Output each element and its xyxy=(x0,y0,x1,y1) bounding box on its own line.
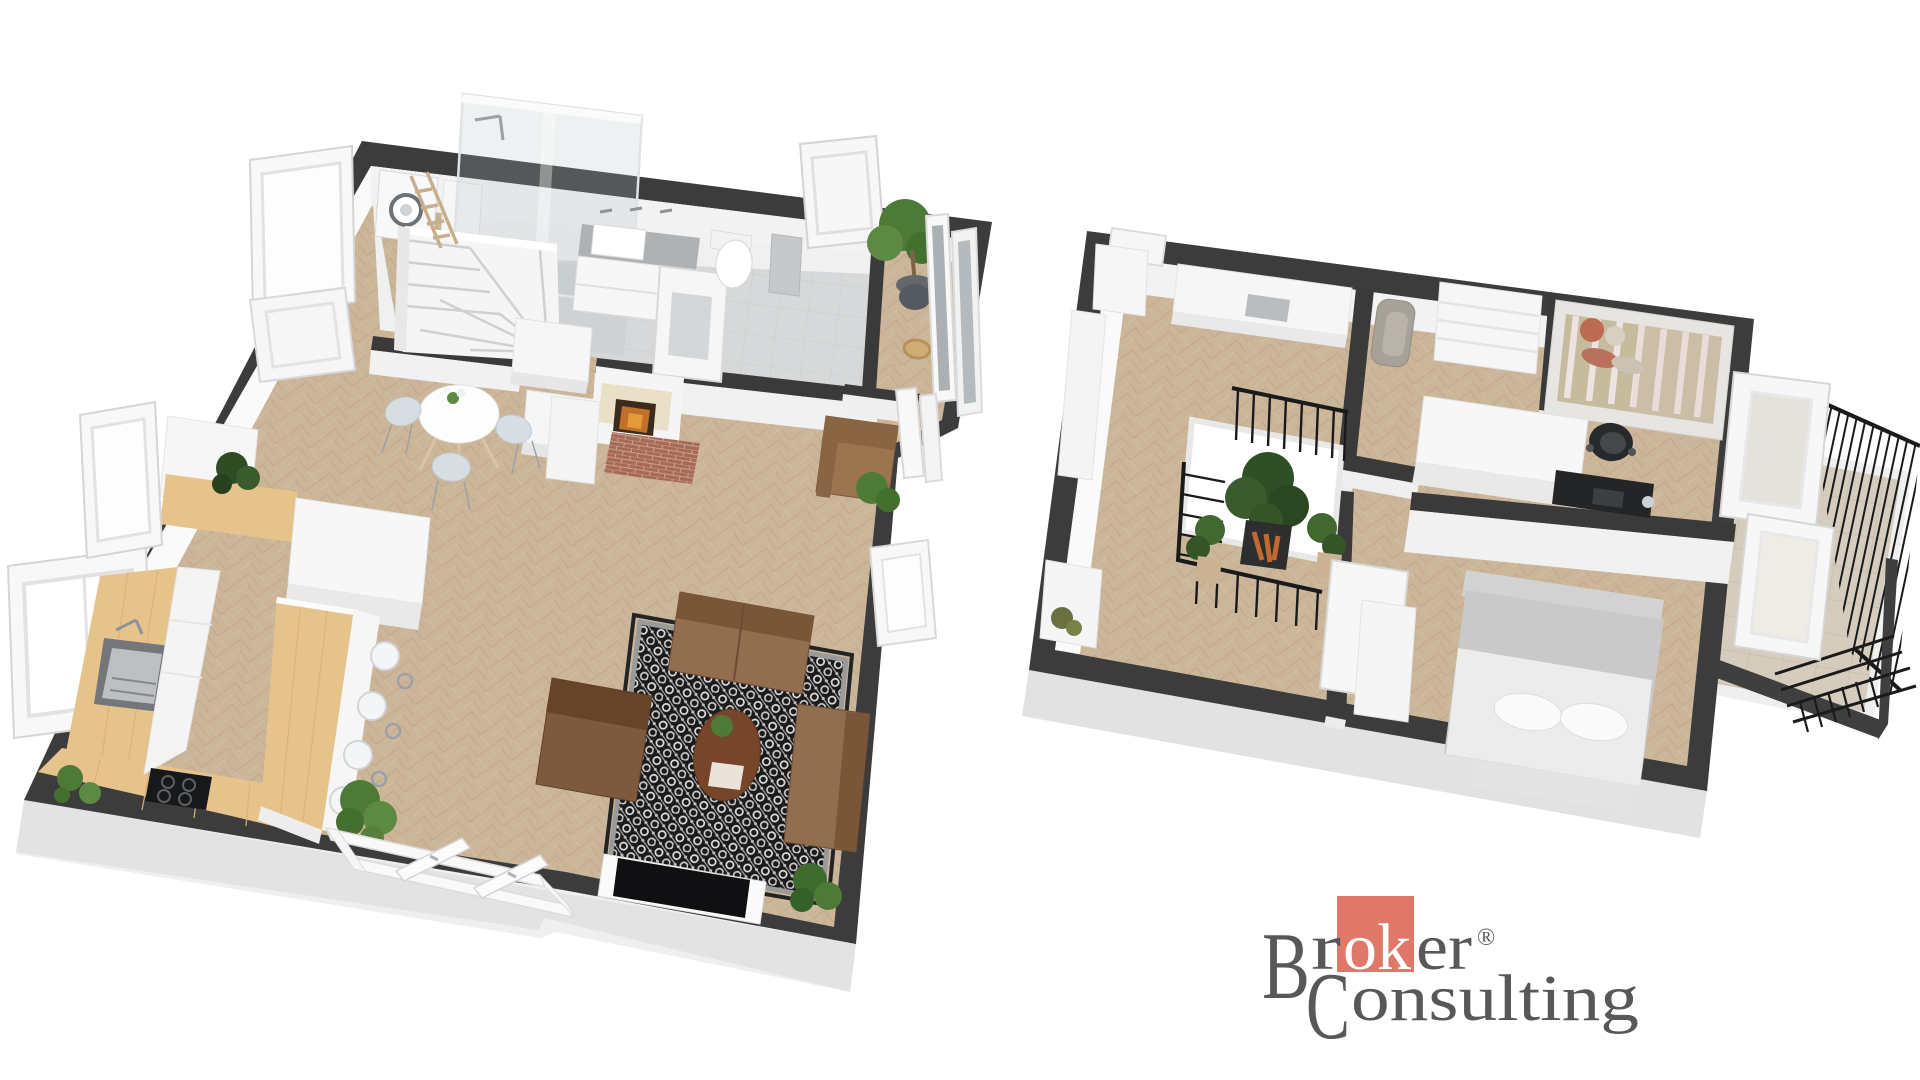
svg-text:B: B xyxy=(1262,913,1310,1019)
svg-text:C: C xyxy=(1306,953,1350,1059)
svg-text:onsulting: onsulting xyxy=(1351,962,1639,1035)
svg-text:®: ® xyxy=(1477,925,1495,951)
